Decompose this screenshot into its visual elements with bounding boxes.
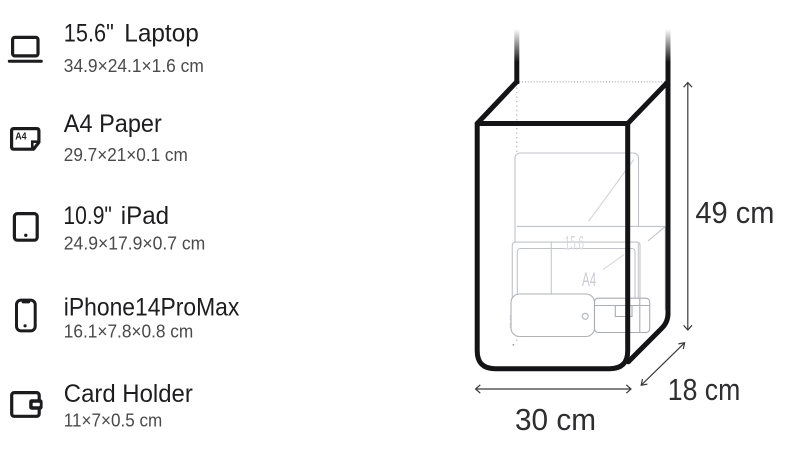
svg-text:11×7×0.5 cm: 11×7×0.5 cm: [64, 409, 163, 430]
svg-text:10.9"iPad: 10.9"iPad: [63, 202, 169, 230]
svg-text:29.7×21×0.1 cm: 29.7×21×0.1 cm: [64, 144, 188, 165]
svg-text:Card Holder: Card Holder: [64, 380, 193, 408]
svg-text:16.1×7.8×0.8 cm: 16.1×7.8×0.8 cm: [64, 321, 194, 342]
svg-text:A4: A4: [582, 270, 596, 291]
svg-text:15.6: 15.6: [565, 234, 585, 255]
svg-text:iPhone14ProMax: iPhone14ProMax: [64, 294, 240, 322]
svg-text:34.9×24.1×1.6 cm: 34.9×24.1×1.6 cm: [64, 55, 204, 76]
svg-text:15.6"Laptop: 15.6"Laptop: [64, 19, 199, 47]
svg-text:49 cm: 49 cm: [695, 196, 774, 230]
svg-text:24.9×17.9×0.7 cm: 24.9×17.9×0.7 cm: [64, 232, 206, 253]
svg-text:18 cm: 18 cm: [668, 373, 741, 407]
svg-text:A4: A4: [15, 132, 27, 143]
svg-text:30 cm: 30 cm: [515, 403, 596, 437]
svg-text:A4 Paper: A4 Paper: [64, 110, 162, 138]
